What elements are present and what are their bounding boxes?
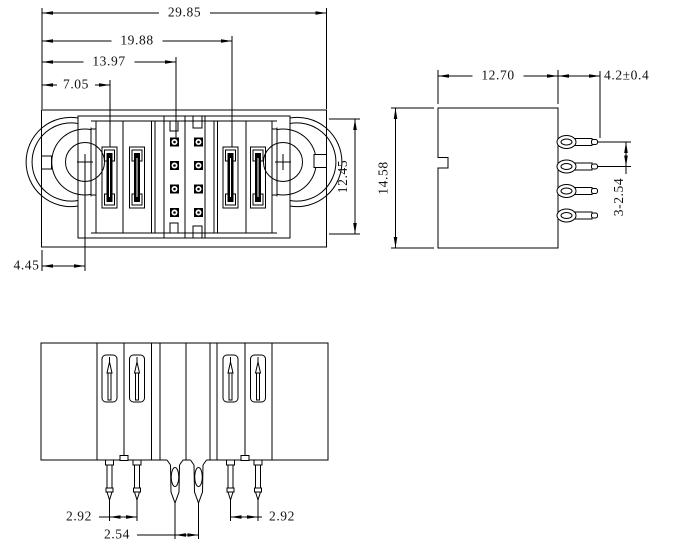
side-pin <box>557 136 598 149</box>
contact-slot <box>102 147 117 208</box>
contact-slot <box>130 147 145 208</box>
dim-right-pin-spacing: 2.92 <box>231 509 303 524</box>
side-view <box>438 108 598 248</box>
dim-circle-center-offset: 4.45 <box>13 170 85 273</box>
side-pin <box>557 185 598 198</box>
dim-first-pin-offset: 7.05 <box>42 77 110 147</box>
top-view <box>26 110 342 247</box>
solder-pin <box>133 460 141 521</box>
contact-slot <box>223 147 238 208</box>
dim-label-body-height: 14.58 <box>376 161 391 194</box>
contact-grid <box>170 138 203 218</box>
connector-engineering-drawing: 29.85 19.88 13.97 7.05 4.45 12.45 <box>0 0 681 548</box>
edge-step <box>241 456 249 461</box>
dim-label-pin-group-width: 19.88 <box>120 33 153 48</box>
right-side-tab <box>314 155 327 168</box>
dim-body-width: 12.70 <box>438 68 558 104</box>
dim-label-pin-pitch: 3-2.54 <box>611 178 626 216</box>
dim-body-height: 14.58 <box>376 108 434 248</box>
left-side-tab <box>42 156 52 169</box>
side-pin <box>557 209 598 222</box>
drawing-canvas: 29.85 19.88 13.97 7.05 4.45 12.45 <box>0 0 681 548</box>
dim-label-circle-center-offset: 4.45 <box>13 258 39 273</box>
slot-window <box>130 355 145 402</box>
front-view-body <box>41 343 328 460</box>
dim-contact-offset: 13.97 <box>42 54 176 139</box>
dim-label-right-pin-spacing: 2.92 <box>269 509 295 524</box>
center-solder-pin <box>191 458 207 539</box>
dim-left-pin-spacing: 2.92 <box>59 509 137 524</box>
dim-label-pin-length: 4.2±0.4 <box>604 68 649 83</box>
side-pin <box>557 160 598 173</box>
dim-label-overall-width: 29.85 <box>168 5 201 20</box>
left-guide-circle <box>26 117 104 206</box>
right-guide-circle <box>264 117 342 206</box>
front-view-section-lines <box>97 343 272 460</box>
keying-tabs <box>170 116 202 238</box>
solder-pin <box>106 460 114 521</box>
dim-label-first-pin-offset: 7.05 <box>63 77 89 92</box>
dim-center-pin-spacing: 2.54 <box>97 527 199 542</box>
solder-pin <box>254 460 262 521</box>
edge-step <box>120 456 128 461</box>
dim-pin-length: 4.2±0.4 <box>558 68 649 138</box>
contact-slot <box>251 147 266 208</box>
dim-pin-pitch: 3-2.54 <box>598 142 631 216</box>
dim-label-body-width: 12.70 <box>481 68 514 83</box>
slot-window <box>223 355 238 402</box>
solder-pin <box>227 460 235 521</box>
dim-label-left-pin-spacing: 2.92 <box>66 509 92 524</box>
center-solder-pin <box>167 458 183 539</box>
top-view-section-lines <box>96 116 272 238</box>
slot-window <box>251 355 266 402</box>
dim-label-inner-height: 12.45 <box>335 160 350 193</box>
side-view-body <box>438 108 558 248</box>
dim-label-center-pin-spacing: 2.54 <box>104 527 130 542</box>
slot-window <box>102 355 117 402</box>
dim-label-contact-offset: 13.97 <box>92 54 125 69</box>
top-view-outer-body <box>42 110 327 247</box>
